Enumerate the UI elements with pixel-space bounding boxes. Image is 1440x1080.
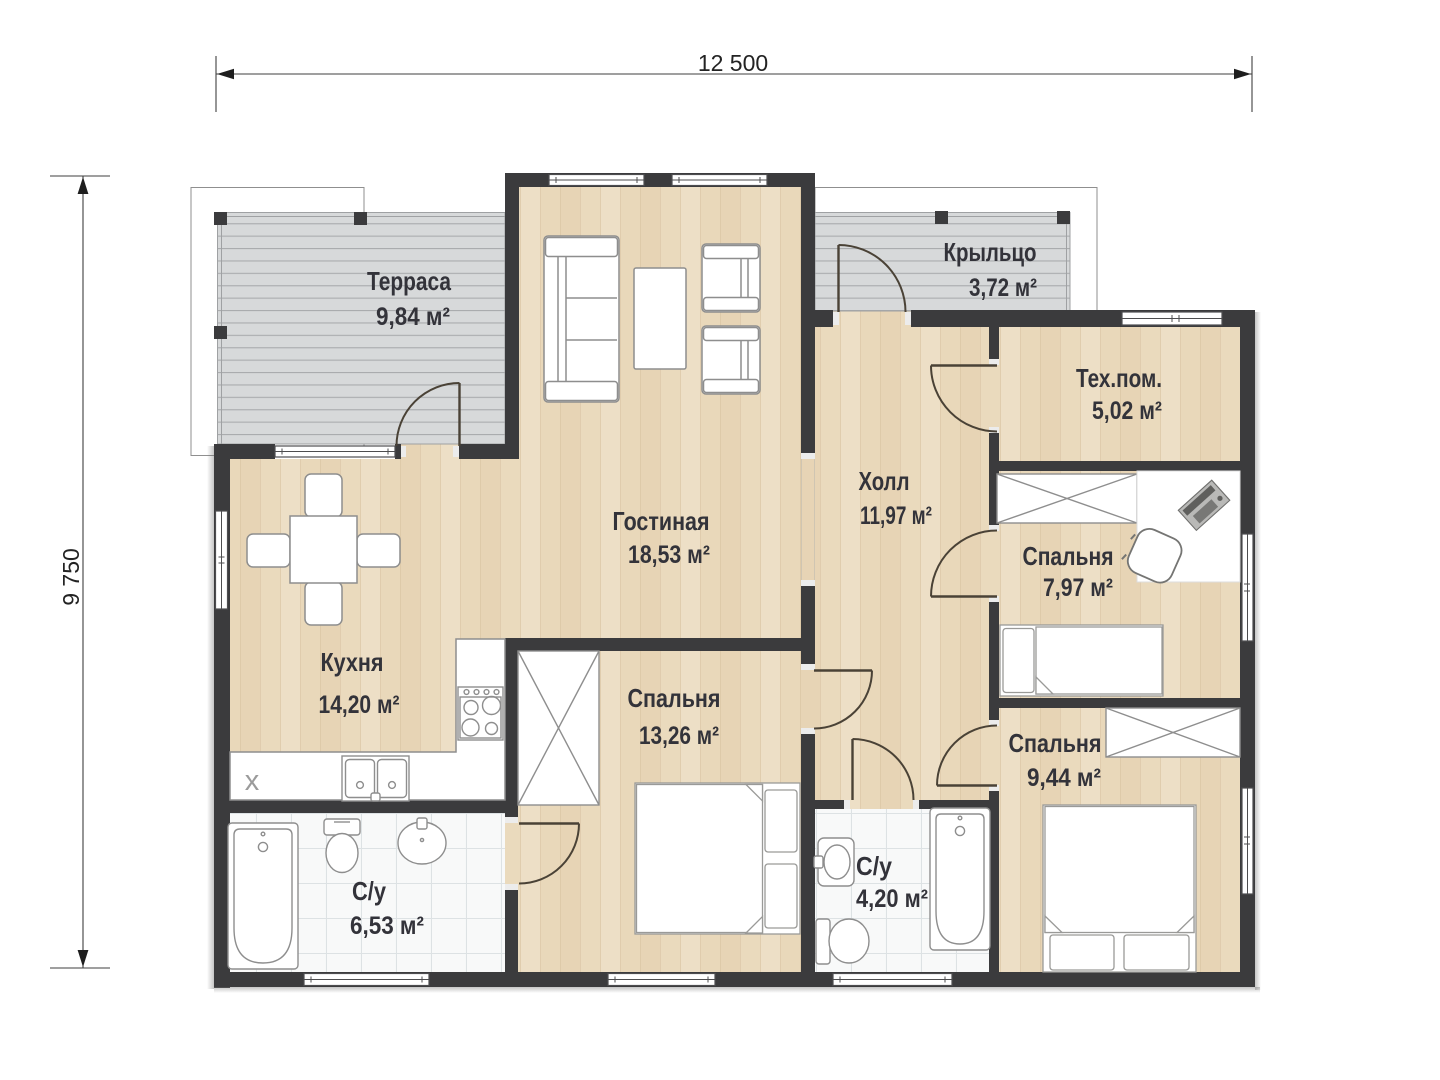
svg-text:4,20 м²: 4,20 м²	[856, 885, 928, 913]
svg-text:Крыльцо: Крыльцо	[944, 237, 1037, 267]
svg-text:Спальня: Спальня	[1009, 728, 1102, 758]
svg-text:9,84 м²: 9,84 м²	[376, 303, 450, 331]
svg-text:3,72 м²: 3,72 м²	[969, 274, 1037, 302]
svg-text:14,20 м²: 14,20 м²	[319, 691, 400, 719]
svg-text:С/у: С/у	[856, 851, 892, 881]
svg-text:Терраса: Терраса	[367, 266, 451, 296]
svg-text:Тех.пом.: Тех.пом.	[1076, 363, 1162, 393]
svg-text:9,44 м²: 9,44 м²	[1027, 764, 1101, 792]
svg-text:7,97 м²: 7,97 м²	[1043, 574, 1113, 602]
svg-text:12 500: 12 500	[698, 50, 768, 76]
svg-text:x: x	[245, 765, 260, 797]
svg-text:Гостиная: Гостиная	[613, 506, 710, 536]
svg-text:6,53 м²: 6,53 м²	[350, 912, 424, 940]
svg-text:13,26 м²: 13,26 м²	[639, 722, 719, 750]
svg-text:18,53 м²: 18,53 м²	[628, 541, 710, 569]
svg-text:Спальня: Спальня	[628, 683, 721, 713]
svg-text:5,02 м²: 5,02 м²	[1092, 397, 1162, 425]
svg-text:11,97 м²: 11,97 м²	[860, 502, 932, 530]
svg-text:Холл: Холл	[859, 466, 910, 496]
svg-text:Кухня: Кухня	[321, 647, 384, 677]
svg-text:9 750: 9 750	[58, 548, 84, 606]
svg-text:С/у: С/у	[352, 876, 386, 906]
svg-text:Спальня: Спальня	[1023, 541, 1114, 571]
